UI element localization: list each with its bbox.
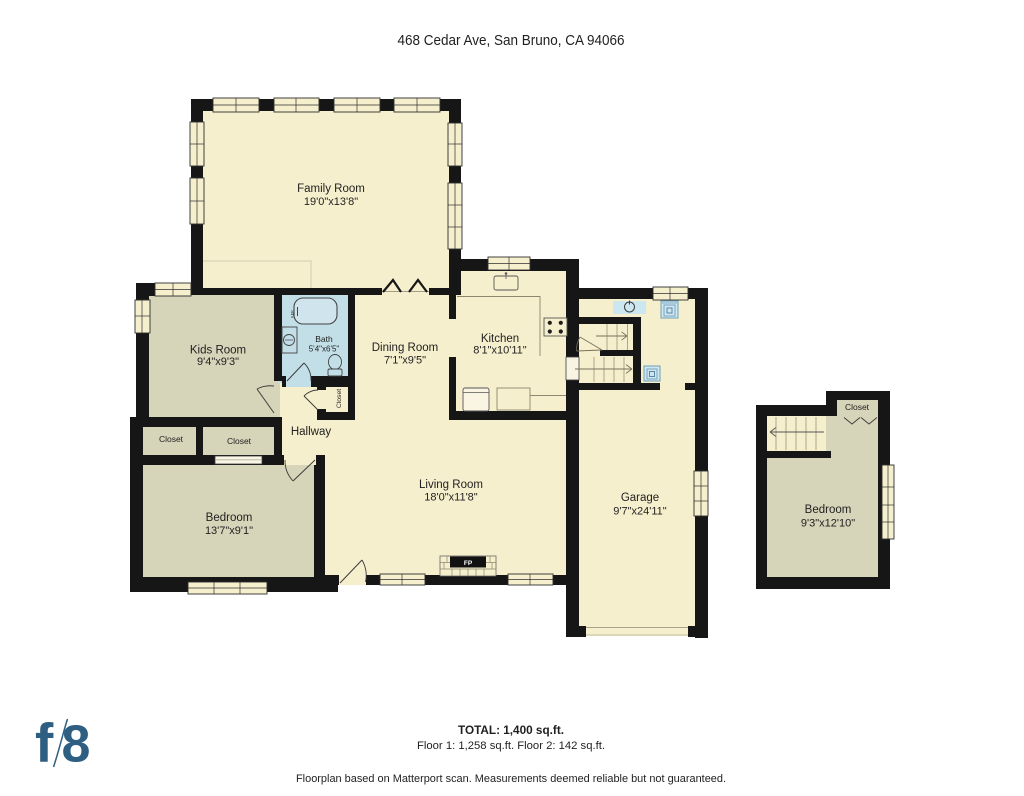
svg-text:Floor 1: 1,258 sq.ft. Floor 2:: Floor 1: 1,258 sq.ft. Floor 2: 142 sq.ft… — [417, 740, 605, 752]
svg-text:8'1"x10'11": 8'1"x10'11" — [473, 345, 526, 357]
svg-text:Closet: Closet — [336, 389, 343, 408]
svg-text:7'1"x9'5": 7'1"x9'5" — [384, 355, 426, 367]
svg-text:9'3"x12'10": 9'3"x12'10" — [801, 518, 855, 530]
svg-text:Floorplan based on Matterport: Floorplan based on Matterport scan. Meas… — [296, 773, 726, 785]
svg-text:13'7"x9'1": 13'7"x9'1" — [205, 525, 253, 537]
svg-text:Kitchen: Kitchen — [481, 333, 519, 345]
svg-text:KER: KER — [291, 310, 295, 318]
svg-text:5'4"x6'5": 5'4"x6'5" — [309, 345, 340, 354]
svg-text:FP: FP — [464, 560, 473, 567]
svg-text:18'0"x11'8": 18'0"x11'8" — [424, 492, 477, 504]
svg-text:Garage: Garage — [621, 492, 659, 504]
svg-text:Bath: Bath — [315, 334, 333, 344]
svg-text:TOTAL: 1,400 sq.ft.: TOTAL: 1,400 sq.ft. — [458, 725, 564, 737]
svg-text:9'4"x9'3": 9'4"x9'3" — [197, 356, 239, 368]
svg-text:Dining Room: Dining Room — [372, 342, 438, 354]
svg-text:9'7"x24'11": 9'7"x24'11" — [613, 506, 666, 518]
svg-text:Closet: Closet — [159, 434, 184, 444]
svg-text:Hallway: Hallway — [291, 426, 332, 438]
svg-text:Family Room: Family Room — [297, 183, 365, 195]
svg-text:Kids Room: Kids Room — [190, 345, 246, 357]
svg-text:Living Room: Living Room — [419, 479, 483, 491]
svg-text:Bedroom: Bedroom — [805, 504, 852, 516]
svg-text:Closet: Closet — [845, 402, 870, 412]
svg-text:Closet: Closet — [227, 436, 252, 446]
svg-text:f: f — [35, 712, 54, 774]
svg-text:468 Cedar Ave, San Bruno, CA 9: 468 Cedar Ave, San Bruno, CA 94066 — [398, 32, 625, 49]
svg-text:Bedroom: Bedroom — [206, 512, 253, 524]
svg-text:19'0"x13'8": 19'0"x13'8" — [304, 196, 358, 208]
